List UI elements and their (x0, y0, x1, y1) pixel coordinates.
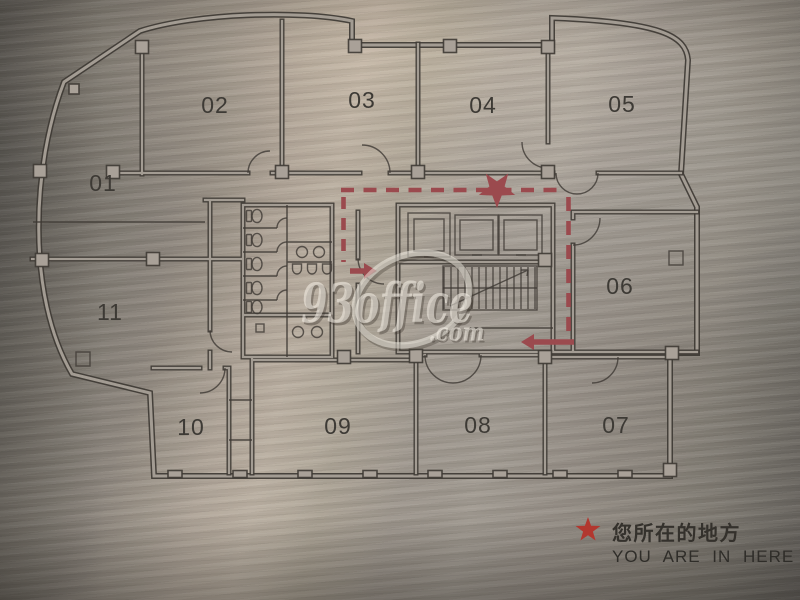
room-label-11: 11 (97, 299, 123, 325)
floor-plan: 01 02 03 04 05 06 07 08 09 10 11 93offic… (0, 0, 800, 600)
room-label-06: 06 (606, 273, 634, 299)
route-arrow-left-icon (521, 334, 574, 350)
elevator-3 (499, 215, 542, 255)
room-label-04: 04 (469, 92, 497, 118)
room-label-01: 01 (89, 170, 117, 196)
elevator-2 (455, 215, 498, 255)
room-label-05: 05 (608, 91, 636, 117)
room-label-07: 07 (602, 412, 630, 438)
legend-label-zh: 您所在的地方 (612, 521, 741, 545)
room-label-03: 03 (348, 87, 376, 113)
room-label-09: 09 (324, 413, 352, 439)
outer-wall (39, 15, 697, 476)
legend-star-icon (576, 517, 601, 541)
watermark-tld: .com (429, 318, 485, 347)
room-label-08: 08 (464, 412, 492, 438)
toilet-icons (247, 209, 263, 313)
legend: 您所在的地方 YOU ARE IN HERE (576, 517, 795, 566)
floor-directory-photo: 01 02 03 04 05 06 07 08 09 10 11 93offic… (0, 0, 800, 600)
legend-label-en: YOU ARE IN HERE (612, 547, 794, 566)
room-label-10: 10 (177, 414, 205, 440)
room-label-02: 02 (201, 92, 229, 118)
